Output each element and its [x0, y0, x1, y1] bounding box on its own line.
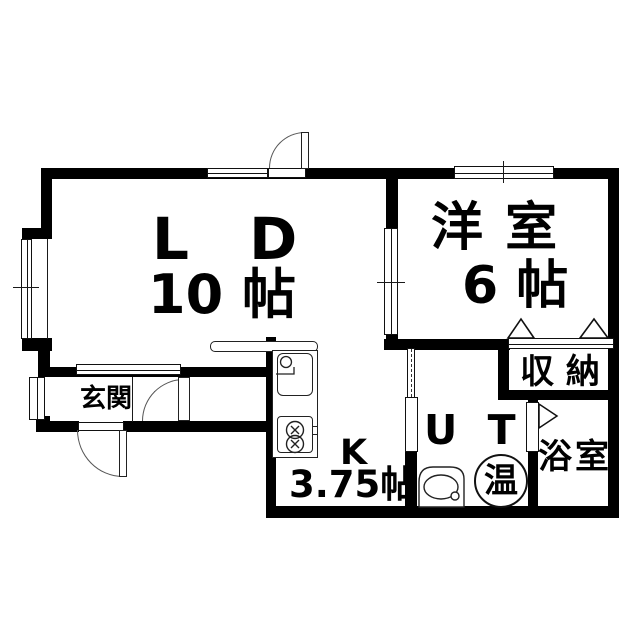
water-heater-label: 温: [484, 464, 518, 498]
wall-western-bottom: [384, 339, 510, 350]
wall-window-jut-lower: [22, 338, 52, 351]
fixture-overlay: [0, 0, 640, 640]
door-leaf-corridor: [178, 377, 190, 421]
room-size-ld: 10 帖: [148, 268, 296, 322]
entrance-step-line: [132, 377, 133, 422]
door-arc-ld-top: [269, 132, 305, 168]
room-label-ld: L D: [152, 210, 317, 268]
sliding-door-storage: [508, 338, 614, 349]
kitchen-sink-icon: [277, 353, 313, 396]
wash-basin-icon: [419, 467, 464, 507]
sliding-door-entrance-ld: [76, 364, 181, 375]
wall-ld-western-upper: [386, 176, 398, 230]
room-size-western: 6 帖: [462, 260, 568, 312]
sliding-door-ld-western-tick: [377, 282, 405, 283]
window-western-top-tick: [503, 161, 504, 183]
door-opening-ld-top: [268, 168, 306, 178]
ld-recess-edge-line: [47, 239, 48, 339]
wall-exterior-left-upper: [41, 168, 52, 232]
sliding-door-track-kitchen-utility: [407, 348, 415, 398]
window-western-top: [454, 166, 554, 179]
bath-door-triangle-icon: [539, 404, 557, 428]
floor-plan: L D 10 帖 洋 室 6 帖 玄関 K 3.75帖 U T 収 納 浴室 温: [0, 0, 640, 640]
room-size-kitchen: 3.75帖: [289, 466, 417, 503]
room-label-utility: U T: [424, 410, 524, 451]
sliding-door-panel-kitchen-utility: [405, 397, 418, 452]
room-label-western: 洋 室: [431, 202, 559, 254]
door-arc-entrance: [77, 430, 123, 477]
window-ld-left: [21, 239, 32, 339]
wall-entrance-bottom-right: [123, 421, 268, 432]
window-ld-top: [207, 168, 268, 178]
window-ld-left-tick: [13, 287, 39, 288]
stove-knob-icon: [312, 426, 318, 435]
kitchen-stove-icon: [277, 416, 313, 453]
storage-door-triangles-icon: [508, 319, 608, 338]
wall-entrance-bottom-left: [36, 421, 79, 432]
wall-window-jut-upper: [22, 228, 52, 239]
room-label-storage: 収 納: [520, 355, 600, 389]
door-leaf-ld-top: [301, 132, 309, 169]
wall-exterior-bottom: [266, 506, 619, 518]
window-entrance-left: [29, 377, 45, 420]
door-leaf-entrance: [119, 430, 127, 477]
room-label-entrance: 玄関: [80, 386, 132, 412]
room-label-bath: 浴室: [538, 440, 612, 474]
